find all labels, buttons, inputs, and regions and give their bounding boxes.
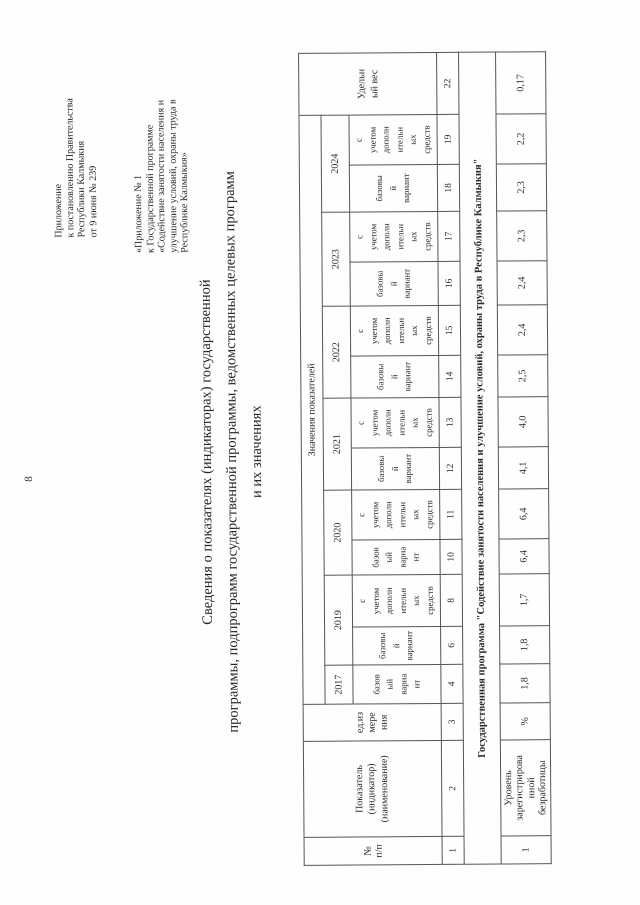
column-number-cell: 12 [439, 447, 461, 489]
value-cell: 4,0 [498, 397, 548, 447]
variant-header: базов ый вариа нт [353, 664, 441, 704]
column-number-cell: 22 [437, 52, 459, 114]
program-section-row: Государственная программа "Содействие за… [459, 52, 502, 864]
year-header: 2020 [324, 490, 353, 575]
column-number-cell: 15 [438, 305, 460, 355]
page-number: 8 [23, 476, 35, 482]
column-number-cell: 8 [440, 574, 462, 626]
value-cell: 4,1 [498, 447, 548, 489]
column-number-cell: 11 [440, 489, 462, 539]
column-number-cell: 19 [437, 114, 459, 164]
value-cell: 2,3 [496, 164, 546, 211]
value-cell: 2,4 [497, 305, 547, 355]
variant-header: базовы й вариант [351, 447, 439, 490]
value-cell: 2,2 [496, 114, 546, 164]
column-number-cell: 14 [439, 355, 461, 397]
column-number-cell: 1 [442, 836, 464, 864]
column-number-cell: 13 [439, 397, 461, 447]
year-header: 2024 [321, 115, 350, 212]
document-title: Сведения о показателях (индикаторах) гос… [192, 0, 273, 905]
variant-header: с учетом дополн ительн ых средств [349, 114, 437, 165]
indicators-table: № п/п Показатель (индикатор) (наименован… [298, 51, 552, 866]
table-data-row: 1 Уровень зарегистрирова нной безработиц… [496, 52, 552, 864]
indicator-name-cell: Уровень зарегистрирова нной безработицы [500, 740, 551, 836]
column-number-cell: 3 [441, 703, 463, 740]
year-header: 2022 [322, 306, 351, 398]
year-header: 2017 [325, 665, 353, 704]
value-cell: 2,5 [498, 355, 548, 397]
column-number-cell: 2 [441, 740, 464, 836]
variant-header: базовы й вариант [353, 626, 441, 665]
row-number-cell: 1 [501, 836, 551, 864]
column-number-cell: 18 [437, 164, 459, 211]
value-cell: 2,3 [497, 211, 547, 261]
year-header: 2019 [324, 575, 353, 665]
appendix-program-reference-block: «Приложение № 1 к Государственной програ… [132, 99, 191, 253]
column-number-cell: 10 [440, 539, 462, 574]
rotated-page-content: 8 Приложение к постановлению Правительст… [0, 0, 640, 905]
scanned-document-page: 8 Приложение к постановлению Правительст… [0, 0, 640, 905]
value-cell: 0,17 [496, 52, 546, 114]
value-cell: 2,4 [497, 261, 547, 305]
variant-header: базовы й вариант [350, 261, 438, 306]
variant-header: с учетом дополн ительн ых средств [352, 574, 440, 627]
variant-header: с учетом дополн ительн ых средств [351, 397, 439, 448]
appendix-reference-block: Приложение к постановлению Правительства… [52, 98, 99, 238]
header-cell-unit: ед.из мере ния [303, 703, 441, 741]
value-cell: 1,8 [500, 626, 550, 664]
column-number-cell: 4 [441, 664, 463, 703]
header-cell-row-number: № п/п [304, 836, 442, 865]
variant-header: базовы й вариант [351, 355, 439, 398]
variant-header: с учетом дополн ительн ых средств [352, 489, 440, 540]
header-cell-indicator: Показатель (индикатор) (наименование) [303, 740, 442, 837]
header-cell-weight: Удельн ый вес [299, 52, 437, 115]
year-header: 2023 [322, 212, 351, 306]
variant-header: с учетом дополн ительн ых средств [350, 211, 438, 262]
column-number-cell: 17 [438, 211, 460, 261]
variant-header: базов ый вариа нт [352, 539, 440, 575]
column-number-cell: 6 [441, 626, 463, 664]
value-cell: 6,4 [499, 539, 549, 574]
value-cell: 1,7 [499, 574, 549, 626]
unit-cell: % [500, 703, 550, 740]
variant-header: с учетом дополн ительн ых средств [350, 305, 438, 356]
column-number-cell: 16 [438, 261, 460, 305]
value-cell: 6,4 [499, 489, 549, 539]
value-cell: 1,8 [500, 664, 550, 703]
variant-header: базовы й вариант [349, 164, 437, 212]
year-header: 2021 [323, 398, 352, 490]
program-section-title: Государственная программа "Содействие за… [459, 52, 502, 864]
